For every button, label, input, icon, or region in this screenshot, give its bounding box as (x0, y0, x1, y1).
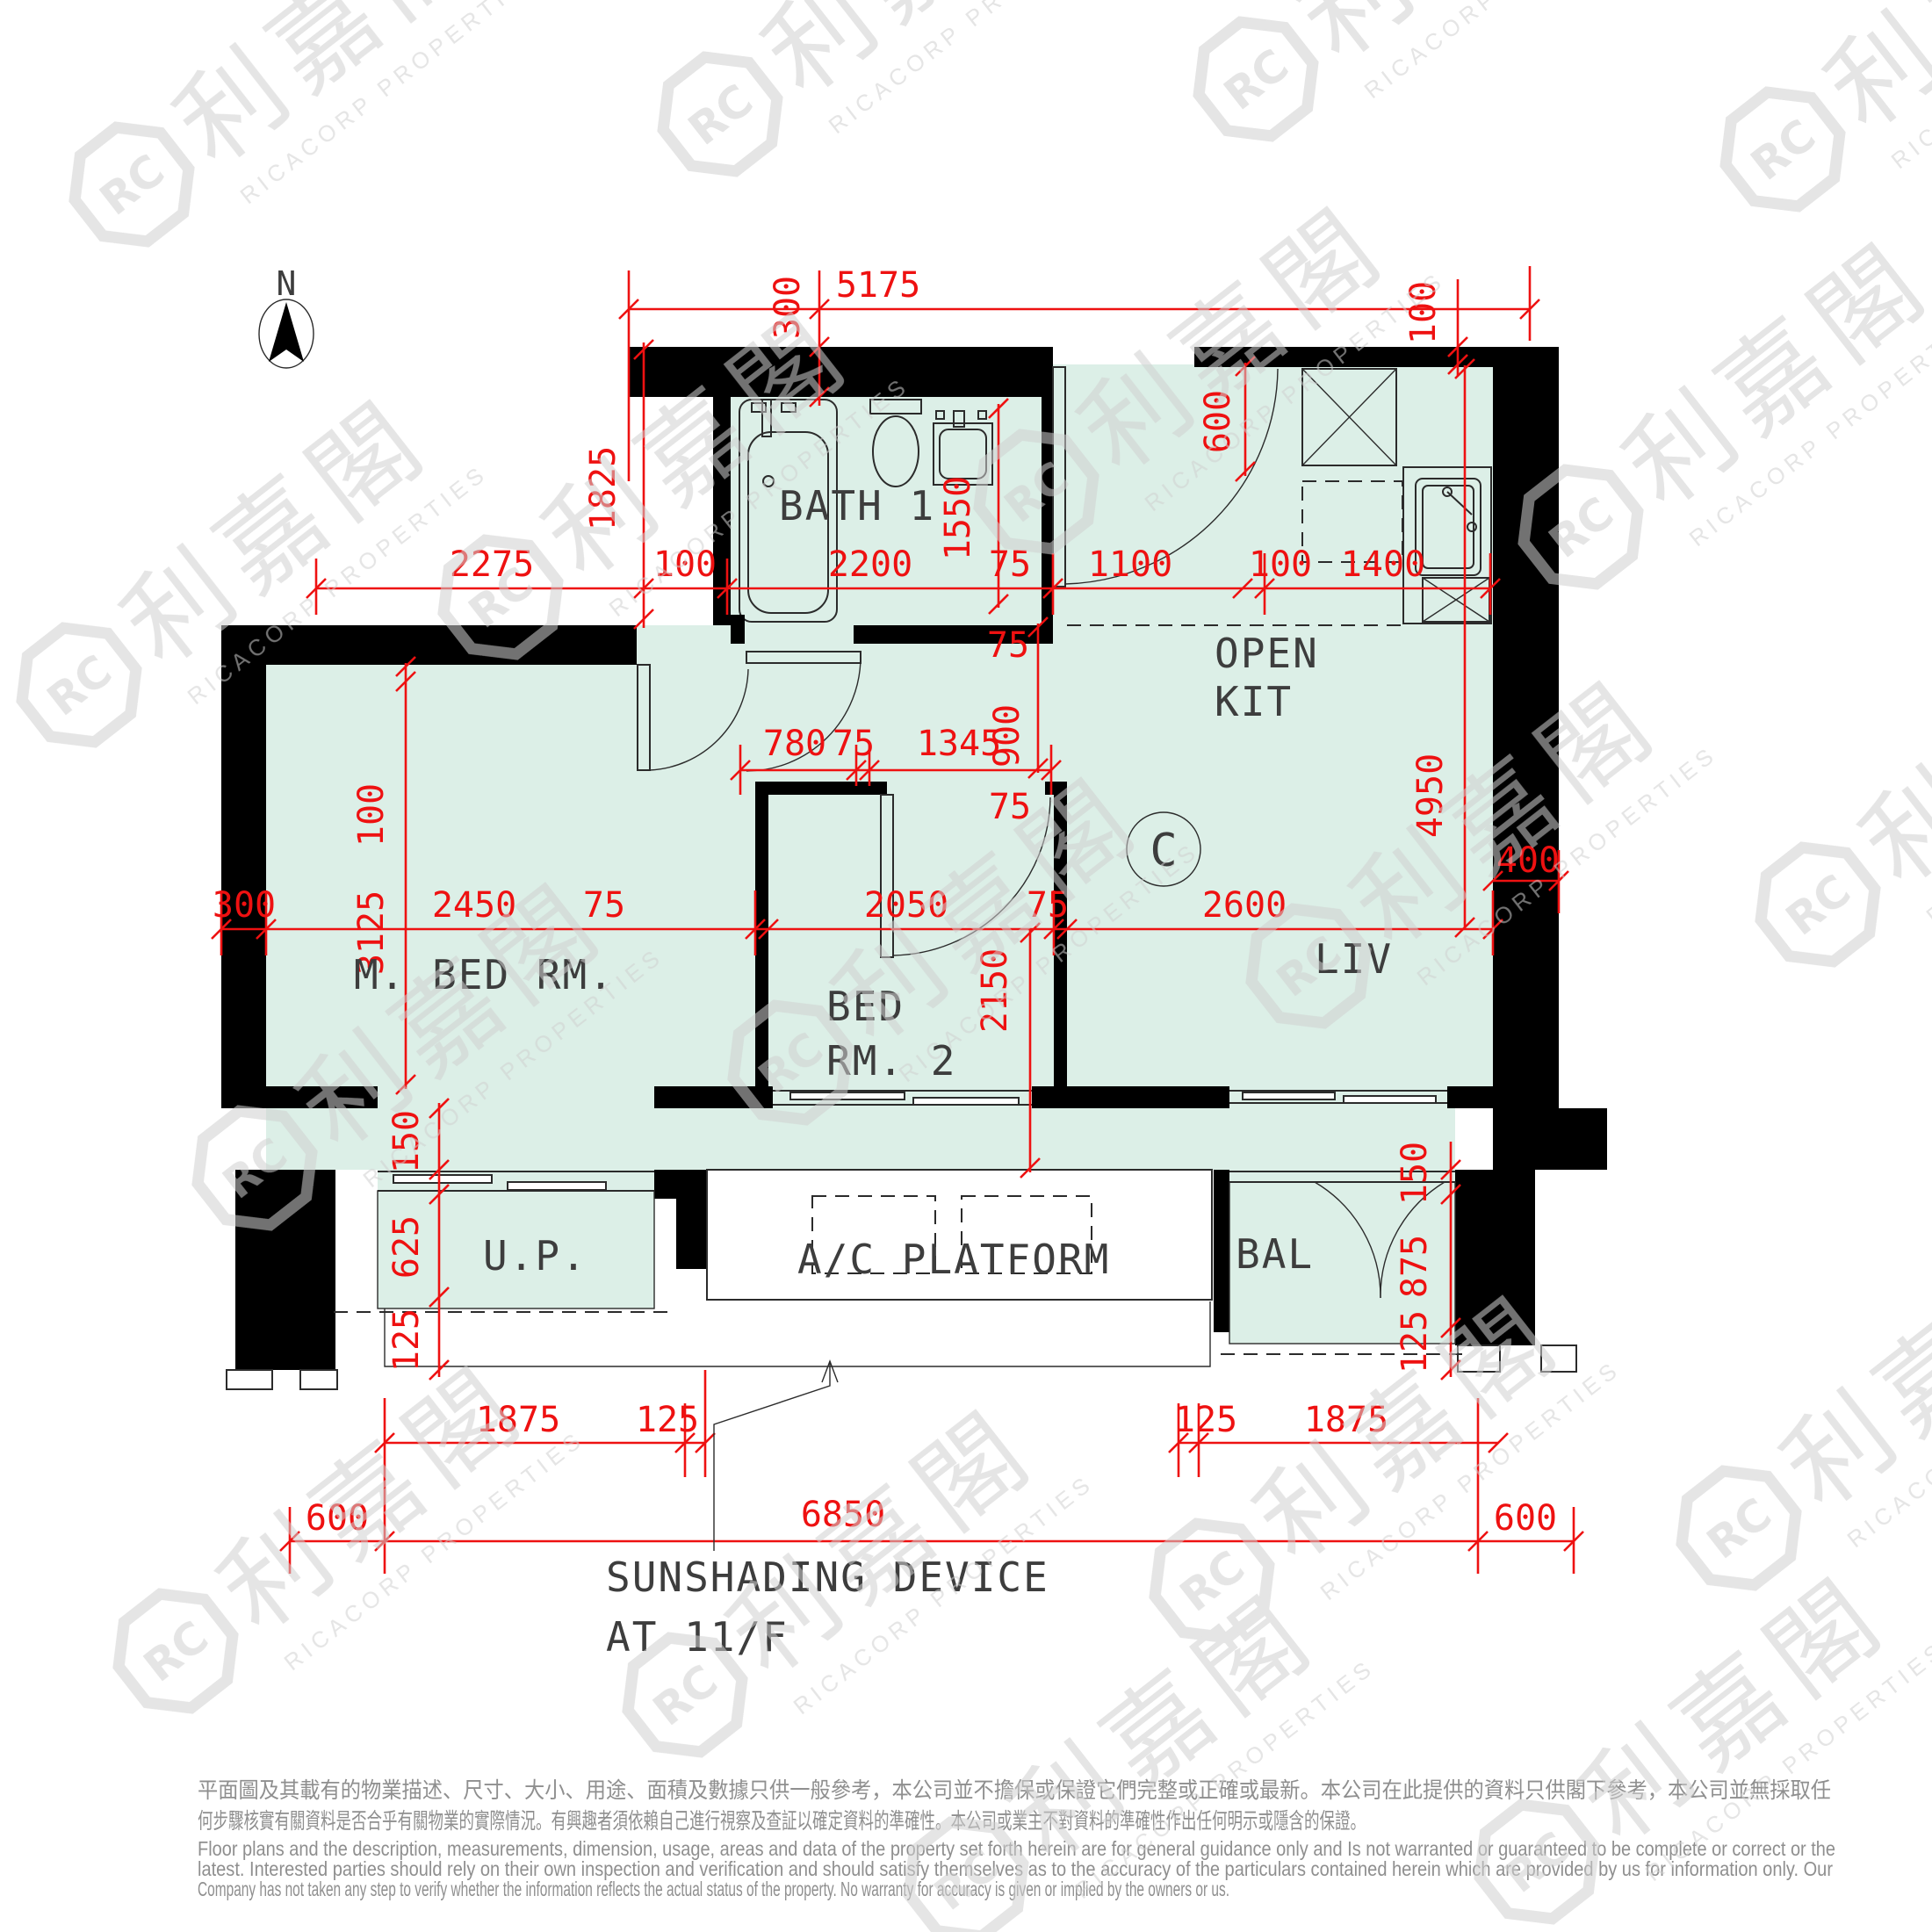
dim-vert: 1550 (938, 476, 978, 560)
dim-main: 300 (213, 885, 276, 926)
room-label-ac-platform: A/C PLATFORM (797, 1236, 1110, 1283)
dim-r2: 1400 (1341, 544, 1425, 585)
room-label-bal: BAL (1236, 1230, 1314, 1278)
room-label-openkit-1: OPEN (1215, 630, 1319, 677)
room-label-up: U.P. (483, 1232, 588, 1280)
dim-up: 625 (386, 1215, 427, 1279)
dim-top-width: 5175 (836, 265, 920, 306)
dim-r2: 2200 (828, 544, 912, 585)
dim-vert: 900 (987, 704, 1027, 768)
dim-bottom: 600 (1494, 1498, 1557, 1539)
footing (300, 1370, 337, 1389)
compass-icon: N (259, 264, 314, 368)
dim-bal: 875 (1395, 1235, 1435, 1298)
compass-north-label: N (277, 264, 297, 303)
dim-bal: 150 (1395, 1142, 1435, 1205)
compass-needle (269, 302, 304, 362)
dim-r2: 100 (1249, 544, 1312, 585)
dim-corridor: 780 (763, 724, 826, 764)
dim-bottom: 125 (636, 1400, 699, 1440)
floorplan-canvas: RC 利嘉閣 RICACORP PROPERTIES (0, 0, 1932, 1932)
left-wall (221, 625, 266, 1108)
dim-corridor: 75 (833, 724, 875, 764)
dim-vert: 100 (351, 783, 392, 847)
dim-vert: 75 (987, 625, 1029, 666)
room-label-openkit-2: KIT (1215, 678, 1293, 725)
dim-up: 125 (386, 1308, 427, 1372)
room-label-bath1: BATH 1 (779, 482, 935, 530)
dim-r2: 1100 (1088, 544, 1172, 585)
footing (227, 1370, 272, 1389)
dim-bottom: 125 (1174, 1400, 1237, 1440)
